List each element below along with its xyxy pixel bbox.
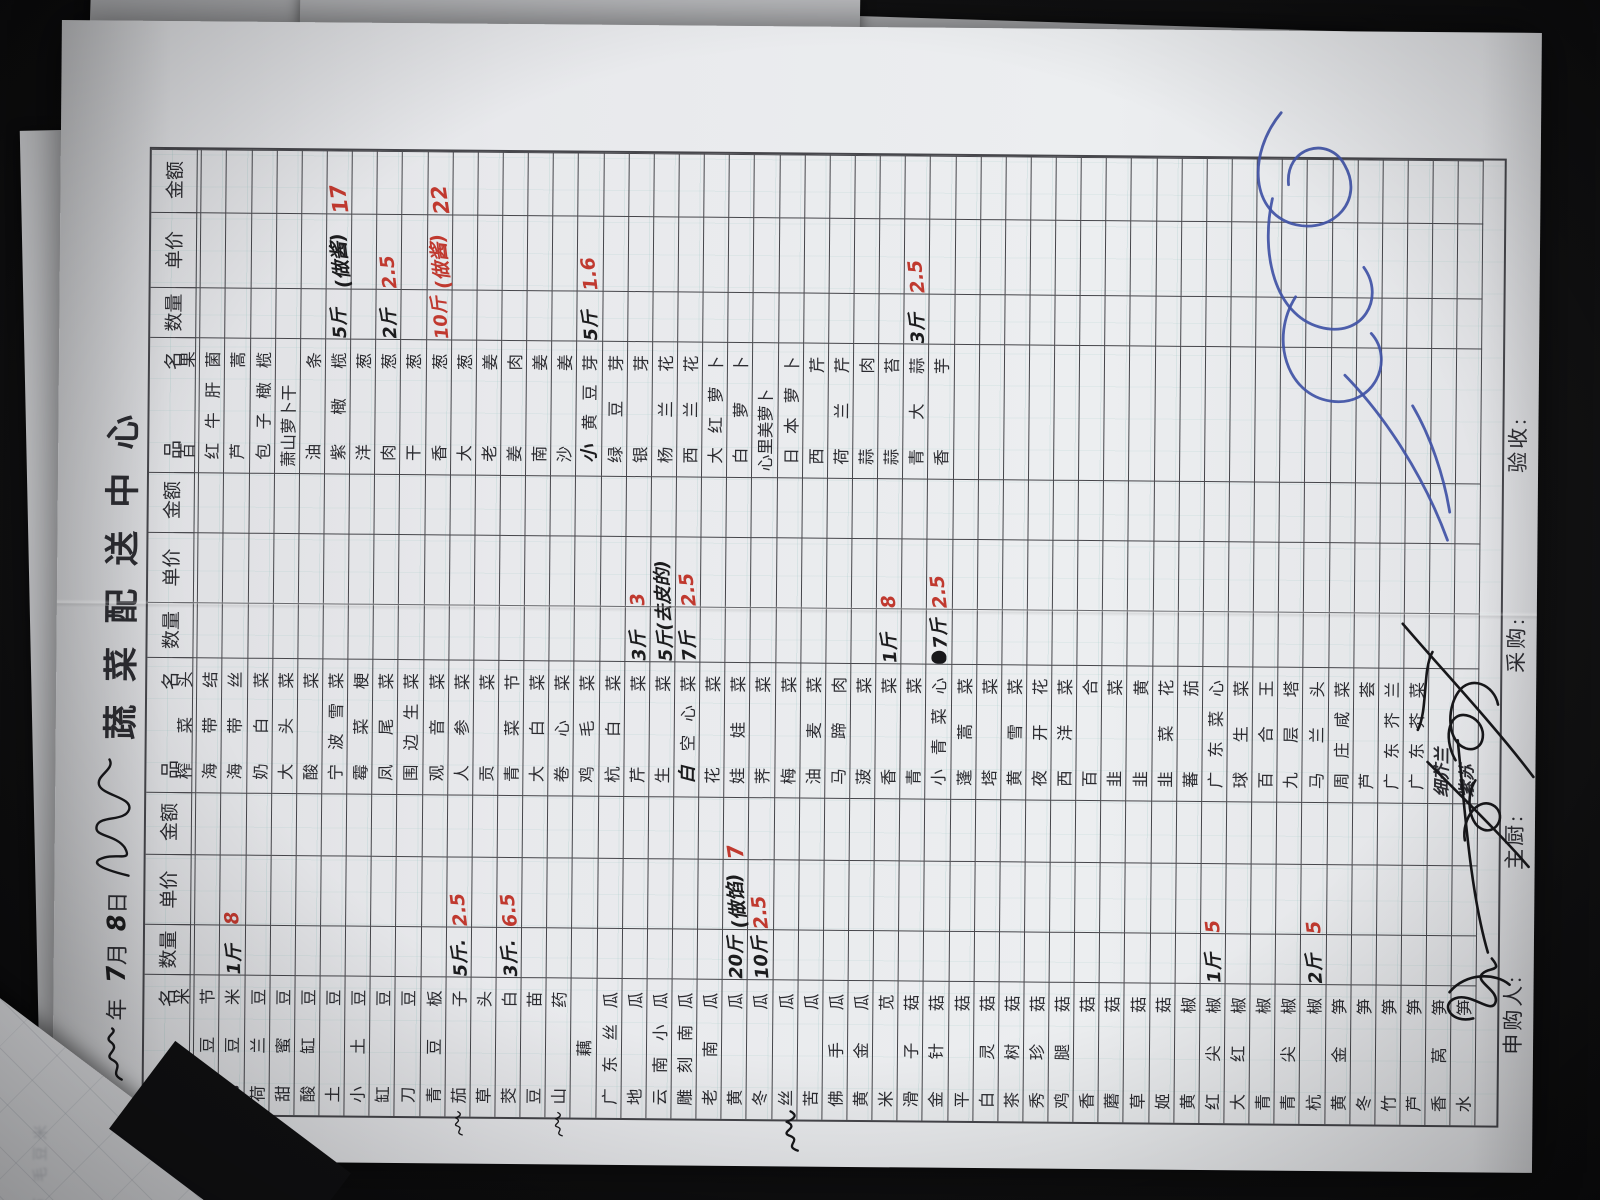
item-name-char: 咸 xyxy=(1328,712,1352,729)
unit-price-cell xyxy=(1000,861,1026,931)
item-name-cell: 云南小瓜 xyxy=(646,978,672,1118)
quantity-cell xyxy=(1005,294,1031,344)
item-name-char: 干 xyxy=(401,445,425,462)
item-name-char: 丝 xyxy=(772,1090,796,1107)
quantity-cell xyxy=(572,928,598,978)
amount-cell xyxy=(227,149,253,212)
item-name-cell: 鸡腿菇 xyxy=(1048,982,1074,1122)
amount-cell xyxy=(573,796,599,858)
item-name-cell: 小青菜心 xyxy=(926,664,952,799)
quantity-cell xyxy=(499,605,525,660)
unit-price-cell xyxy=(1304,542,1330,612)
item-name-cell: 米苋 xyxy=(872,980,898,1120)
unit-price-cell xyxy=(603,216,629,291)
item-name-char: 韭 xyxy=(1152,771,1176,788)
amount-cell xyxy=(372,794,398,856)
item-name-char: 肉 xyxy=(826,677,850,694)
item-name-char: 瓜 xyxy=(723,993,747,1010)
amount-cell xyxy=(526,475,552,535)
item-name-char: 东 xyxy=(596,1056,620,1073)
item-name-char: 花 xyxy=(699,767,723,784)
item-name-cell xyxy=(1155,346,1181,481)
item-name-char: 蕃 xyxy=(1177,771,1201,788)
handwritten-amount: 7 xyxy=(723,843,749,861)
item-name-cell: 人参菜 xyxy=(448,659,474,794)
quantity-cell xyxy=(700,607,726,662)
item-name-cell: 滑子菇 xyxy=(898,980,924,1120)
quantity-cell xyxy=(804,293,830,343)
item-name-char: 带 xyxy=(222,717,246,734)
quantity-cell xyxy=(874,930,900,980)
unit-price-cell xyxy=(198,532,224,602)
order-table: 品名数量单价金额品名数量单价金额品名数量单价金额玉米榨菜头百果毛豆节海带结红牛肝… xyxy=(141,147,1506,1128)
item-name-char: 瓜 xyxy=(622,992,646,1009)
quantity-cell xyxy=(653,291,679,341)
amount-cell xyxy=(1431,483,1457,543)
item-name-cell: 姜肉 xyxy=(501,340,527,475)
item-name-char: 兰 xyxy=(1379,682,1403,699)
unit-price-cell xyxy=(1251,863,1277,933)
amount-cell xyxy=(1104,480,1130,540)
amount-cell xyxy=(1280,482,1306,542)
item-name-cell: 水笋 xyxy=(1451,985,1477,1125)
quantity-cell xyxy=(424,604,450,659)
handwritten-quantity: 10斤 xyxy=(746,935,775,980)
item-name-char: 手 xyxy=(823,1042,847,1059)
item-name-char: 豆 xyxy=(320,989,344,1006)
item-name-cell: 白灵菇 xyxy=(973,981,999,1121)
amount-cell xyxy=(548,795,574,857)
item-name-char: 头 xyxy=(471,991,495,1008)
item-name-char: 红 xyxy=(703,417,727,434)
item-name-char: 南 xyxy=(647,1057,671,1074)
item-name-char: 菇 xyxy=(1125,996,1149,1013)
item-name-cell: 苦瓜 xyxy=(797,980,823,1120)
item-name-cell: 宁波雪菜 xyxy=(322,658,348,793)
item-name-char: 头 xyxy=(1304,681,1328,698)
item-name-char: 白 xyxy=(247,717,271,734)
item-name-cell xyxy=(1331,347,1357,482)
unit-price-cell xyxy=(422,856,448,926)
handwritten-unit-price: 2.5 xyxy=(748,894,774,930)
quantity-cell xyxy=(751,607,777,662)
quantity-cell xyxy=(1382,298,1408,348)
quantity-cell xyxy=(474,605,500,660)
item-name-char: 茄 xyxy=(445,1087,469,1104)
item-name-char: 肝 xyxy=(200,382,224,399)
handwritten-unit-price: (做酱) xyxy=(322,232,355,290)
amount-cell xyxy=(802,478,828,538)
quantity-cell xyxy=(1357,297,1383,347)
item-name-cell: 芦蒿 xyxy=(224,337,250,472)
item-name-char: 老 xyxy=(476,445,500,462)
unit-price-cell xyxy=(829,218,855,293)
item-name-cell: 西兰花 xyxy=(677,341,703,476)
amount-cell xyxy=(1380,483,1406,543)
unit-price-cell xyxy=(804,218,830,293)
quantity-cell xyxy=(1256,296,1282,346)
quantity-cell xyxy=(198,602,224,657)
unit-price-cell xyxy=(399,534,425,604)
item-name-char: 苋 xyxy=(873,994,897,1011)
item-name-char: 橄 xyxy=(250,382,274,399)
unit-price-cell xyxy=(1232,221,1258,296)
item-name-char: 腿 xyxy=(1049,1044,1073,1061)
unit-price-cell xyxy=(424,534,450,604)
unit-price-cell xyxy=(271,855,297,925)
quantity-cell: 2斤 xyxy=(376,289,402,339)
amount-cell xyxy=(498,795,524,857)
item-name-char: 瓜 xyxy=(823,994,847,1011)
item-name-cell xyxy=(1104,345,1130,480)
quantity-cell xyxy=(1427,935,1453,985)
item-name-char: 白 xyxy=(727,447,751,464)
unit-price-cell xyxy=(799,860,825,930)
item-name-cell: 九层塔 xyxy=(1278,667,1304,802)
quantity-cell xyxy=(949,931,975,981)
quantity-cell: 1斤 xyxy=(1200,933,1226,983)
item-name-char: 菜 xyxy=(600,675,624,692)
item-name-cell xyxy=(1456,348,1482,483)
item-name-cell: 海带结 xyxy=(196,657,222,792)
item-name-cell: 佛手瓜 xyxy=(822,980,848,1120)
amount-cell xyxy=(503,152,529,215)
item-name-char: 佛 xyxy=(822,1090,846,1107)
unit-price-cell xyxy=(1430,543,1456,613)
item-name-char: 菇 xyxy=(1150,997,1174,1014)
item-name-char: 豆 xyxy=(295,989,319,1006)
unit-price-cell xyxy=(223,532,249,602)
item-name-char: 子 xyxy=(446,990,470,1007)
unit-price-cell xyxy=(1176,863,1202,933)
item-name-char: 百 xyxy=(1253,772,1277,789)
item-name-char: 菜 xyxy=(977,678,1001,695)
amount-cell xyxy=(679,153,705,216)
unit-price-cell xyxy=(1226,863,1252,933)
unit-price-cell xyxy=(698,859,724,929)
unit-price-cell xyxy=(726,537,752,607)
unit-price-cell xyxy=(1458,223,1484,298)
amount-cell xyxy=(450,474,476,534)
amount-cell xyxy=(249,473,275,533)
unit-price-cell xyxy=(1003,539,1029,609)
amount-cell xyxy=(777,477,803,537)
quantity-cell xyxy=(245,925,271,975)
item-name-char: 紫 xyxy=(1454,781,1478,798)
amount-cell xyxy=(978,479,1004,539)
unit-price-cell xyxy=(827,538,853,608)
unit-price-cell xyxy=(1028,539,1054,609)
unit-price-cell xyxy=(899,860,925,930)
item-name-cell: 刀豆 xyxy=(395,976,421,1116)
handwritten-quantity: 3斤 xyxy=(903,312,930,344)
item-name-cell: 霉菜梗 xyxy=(347,659,373,794)
item-name-char: 芦 xyxy=(1353,773,1377,790)
unit-price-cell xyxy=(1427,865,1453,935)
item-name-char: 豆 xyxy=(346,990,370,1007)
item-name-char: 人 xyxy=(448,765,472,782)
item-name-char: 香 xyxy=(1426,1095,1450,1112)
month-label: 月 xyxy=(100,943,132,965)
item-name-char: 百 xyxy=(174,443,198,460)
item-name-char: 生 xyxy=(649,767,673,784)
unit-price-cell xyxy=(1357,222,1383,297)
amount-cell xyxy=(1405,483,1431,543)
amount-cell xyxy=(805,155,831,218)
amount-cell xyxy=(702,477,728,537)
item-name-char: 荷 xyxy=(828,448,852,465)
item-name-char: 笋 xyxy=(1401,999,1425,1016)
item-name-char: 蹄 xyxy=(826,722,850,739)
item-name-char: 小 xyxy=(647,1024,671,1041)
quantity-cell xyxy=(1181,296,1207,346)
item-name-char: 云 xyxy=(646,1089,670,1106)
item-name-char: 杨 xyxy=(652,447,676,464)
item-name-char: 银 xyxy=(627,446,651,463)
item-name-char: 冬 xyxy=(747,1090,771,1107)
amount-cell xyxy=(528,152,554,215)
item-name-cell: 竹笋 xyxy=(1375,985,1401,1125)
item-name-cell: 包子橄榄 xyxy=(250,338,276,473)
handwritten-unit-price: 6.5 xyxy=(496,892,522,928)
item-name-char: 菜 xyxy=(575,675,599,692)
item-name-cell: 草头 xyxy=(470,977,496,1117)
item-name-char: 毛 xyxy=(574,720,598,737)
unit-price-cell xyxy=(1031,220,1057,295)
item-name-char: 围 xyxy=(398,765,422,782)
item-name-char: 豆 xyxy=(521,1088,545,1105)
amount-cell xyxy=(221,792,247,854)
item-name-cell: 香芋 xyxy=(928,344,954,479)
unit-price-cell xyxy=(1053,540,1079,610)
quantity-cell xyxy=(1379,613,1405,668)
unit-price-cell xyxy=(1204,541,1230,611)
amount-cell xyxy=(271,793,297,855)
quantity-cell xyxy=(399,604,425,659)
item-name-char: 杭 xyxy=(1300,1094,1324,1111)
item-name-char: 青 xyxy=(1250,1094,1274,1111)
handwritten-unit-price: (做酱) xyxy=(423,233,456,291)
item-name-cell: 雕刻南瓜 xyxy=(671,978,697,1118)
item-name-char: 香 xyxy=(875,769,899,786)
unit-price-cell xyxy=(902,538,928,608)
item-name-cell: 金针菇 xyxy=(923,981,949,1121)
item-name-char: 蜜 xyxy=(270,1037,294,1054)
item-name-cell xyxy=(1180,346,1206,481)
item-name-cell: 日本萝卜 xyxy=(778,342,804,477)
amount-cell xyxy=(598,796,624,858)
bleed-through-text: 品 玉米 毛豆节 毛豆米 xyxy=(26,1119,51,1200)
item-name-char: 菜 xyxy=(650,675,674,692)
handwritten-unit-price: 2.5 xyxy=(927,574,953,610)
quantity-cell xyxy=(276,288,302,338)
amount-cell xyxy=(928,479,954,539)
item-name-char: 包 xyxy=(250,443,274,460)
item-name-char: 榄 xyxy=(326,352,350,369)
unit-price-cell xyxy=(1206,221,1232,296)
item-name-char: 兰 xyxy=(678,401,702,418)
amount-cell xyxy=(500,475,526,535)
item-name-cell: 缸豆 xyxy=(370,976,396,1116)
item-name-char: 头 xyxy=(272,718,296,735)
amount-cell xyxy=(1459,160,1485,223)
item-name-char: 椒 xyxy=(1200,997,1224,1014)
item-name-char: 东 xyxy=(1379,743,1403,760)
amount-cell xyxy=(246,793,272,855)
unit-price-cell xyxy=(1455,543,1481,613)
amount-cell xyxy=(475,475,501,535)
item-name-char: 芹 xyxy=(829,357,853,374)
quantity-cell xyxy=(924,931,950,981)
item-name-char: 东 xyxy=(1203,741,1227,758)
item-name-char: 花 xyxy=(1027,678,1051,695)
item-name-cell: 萧山萝卜干 xyxy=(275,338,301,473)
amount-cell xyxy=(1051,800,1077,862)
amount-cell xyxy=(975,799,1001,861)
item-name-char: 苔 xyxy=(879,357,903,374)
item-name-char: 心 xyxy=(927,678,951,695)
item-name-char: 萝 xyxy=(703,386,727,403)
unit-price-cell xyxy=(477,215,503,290)
quantity-cell: 7斤 xyxy=(675,606,701,661)
item-name-cell xyxy=(953,344,979,479)
item-name-char: 百 xyxy=(1077,770,1101,787)
item-name-char: 花 xyxy=(653,355,677,372)
item-name-char: 平 xyxy=(948,1091,972,1108)
item-name-cell xyxy=(1406,348,1432,483)
item-name-cell: 红牛肝菌 xyxy=(199,337,225,472)
item-name-char: 合 xyxy=(1253,726,1277,743)
item-name-char: 大 xyxy=(451,445,475,462)
item-name-cell: 青尖椒 xyxy=(1275,984,1301,1124)
quantity-cell xyxy=(547,927,573,977)
item-name-cell: 山药 xyxy=(546,977,572,1117)
amount-cell xyxy=(1355,482,1381,542)
item-name-char: 姜 xyxy=(477,354,501,371)
quantity-cell xyxy=(1452,935,1478,985)
item-name-char: 菜 xyxy=(675,675,699,692)
item-name-char: 西 xyxy=(803,448,827,465)
item-name-cell: 黄金笋 xyxy=(1325,984,1351,1124)
amount-cell xyxy=(1257,158,1283,221)
quantity-cell xyxy=(849,930,875,980)
item-name-cell: 百合 xyxy=(1076,665,1102,800)
unit-price-cell xyxy=(472,857,498,927)
handwritten-quantity: 5斤. xyxy=(444,938,472,977)
item-name-char: 结 xyxy=(197,671,221,688)
item-name-char: 土 xyxy=(345,1038,369,1055)
item-name-char: 菜 xyxy=(700,676,724,693)
unit-price-cell xyxy=(170,854,196,924)
item-name-char: 广 xyxy=(1403,773,1427,790)
quantity-cell xyxy=(1329,612,1355,667)
item-name-char: 香 xyxy=(929,449,953,466)
item-name-char: 菇 xyxy=(974,995,998,1012)
amount-cell xyxy=(375,474,401,534)
quantity-cell xyxy=(1281,297,1307,347)
quantity-cell xyxy=(1125,932,1151,982)
quantity-cell xyxy=(678,291,704,341)
handwritten-prefix-scribble xyxy=(548,1111,568,1137)
item-name-cell xyxy=(1255,346,1281,481)
quantity-cell xyxy=(248,603,274,658)
amount-cell xyxy=(1157,158,1183,221)
item-name-cell: 蘑菇 xyxy=(1099,982,1125,1122)
quantity-cell xyxy=(1402,935,1428,985)
item-name-char: 荠 xyxy=(750,768,774,785)
item-name-char: 芽 xyxy=(602,355,626,372)
amount-cell xyxy=(400,474,426,534)
unit-price-cell xyxy=(950,861,976,931)
item-name-char: 药 xyxy=(547,991,571,1008)
item-name-cell: 马蹄肉 xyxy=(825,663,851,798)
item-name-char: 金 xyxy=(923,1091,947,1108)
handwritten-title-prefix-scribble xyxy=(84,753,139,881)
quantity-cell xyxy=(195,924,221,974)
item-name-cell: 杭椒 xyxy=(1300,984,1326,1124)
item-name-cell: 围边生菜 xyxy=(398,659,424,794)
item-name-cell: 草菇 xyxy=(1124,982,1150,1122)
quantity-cell: 10斤 xyxy=(427,289,453,339)
item-name-char: 菜 xyxy=(751,676,775,693)
unit-price-cell xyxy=(751,537,777,607)
item-name-char: 草 xyxy=(1124,1093,1148,1110)
unit-price-cell xyxy=(195,854,221,924)
unit-price-cell xyxy=(475,535,501,605)
amount-cell xyxy=(453,151,479,214)
item-name-char: 黄 xyxy=(1001,770,1025,787)
amount-cell xyxy=(1308,159,1334,222)
quantity-cell: 2斤 xyxy=(1301,934,1327,984)
item-name-cell: 藕 xyxy=(571,978,597,1118)
item-name-char: 菜 xyxy=(776,676,800,693)
item-name-char: 白 xyxy=(524,720,548,737)
item-name-cell: 心里美萝卜 xyxy=(752,342,778,477)
unit-price-cell: (做馅) xyxy=(723,859,749,929)
item-name-char: 美 xyxy=(753,422,777,439)
amount-cell xyxy=(523,795,549,857)
handwritten-prefix: 小 xyxy=(576,445,602,463)
amount-cell xyxy=(1054,480,1080,540)
amount-cell xyxy=(1000,799,1026,861)
order-form: 年 7 月 8 日 蔬菜配送中心 品名数量单价金额品名数量单价金额品名数量单价金… xyxy=(52,20,1542,1173)
day-value: 8 xyxy=(101,913,131,933)
unit-price-cell xyxy=(248,533,274,603)
item-name-char: 椒 xyxy=(1276,998,1300,1015)
item-name-cell: 南姜 xyxy=(526,340,552,475)
item-name-cell: 荷兰豆 xyxy=(244,975,270,1115)
quantity-cell xyxy=(776,607,802,662)
amount-cell xyxy=(1302,802,1328,864)
amount-cell: 7 xyxy=(724,797,750,859)
unit-price-cell xyxy=(1050,862,1076,932)
item-name-char: 兰 xyxy=(1429,747,1453,764)
item-name-char: 菇 xyxy=(1049,996,1073,1013)
item-name-char: 兰 xyxy=(1303,727,1327,744)
quantity-cell xyxy=(1351,934,1377,984)
item-name-cell: 韭黄 xyxy=(1127,665,1153,800)
handwritten-unit-price: 2.5 xyxy=(904,259,930,295)
form-header: 年 7 月 8 日 蔬菜配送中心 xyxy=(87,391,149,1082)
item-name-char: 娃 xyxy=(725,722,749,739)
item-name-char: 梗 xyxy=(348,673,372,690)
quantity-cell xyxy=(628,291,654,341)
unit-price-cell xyxy=(855,218,881,293)
item-name-char: 芥 xyxy=(1379,712,1403,729)
handwritten-quantity: 7斤 xyxy=(925,617,954,650)
unit-price-cell xyxy=(321,855,347,925)
unit-price-cell xyxy=(701,537,727,607)
